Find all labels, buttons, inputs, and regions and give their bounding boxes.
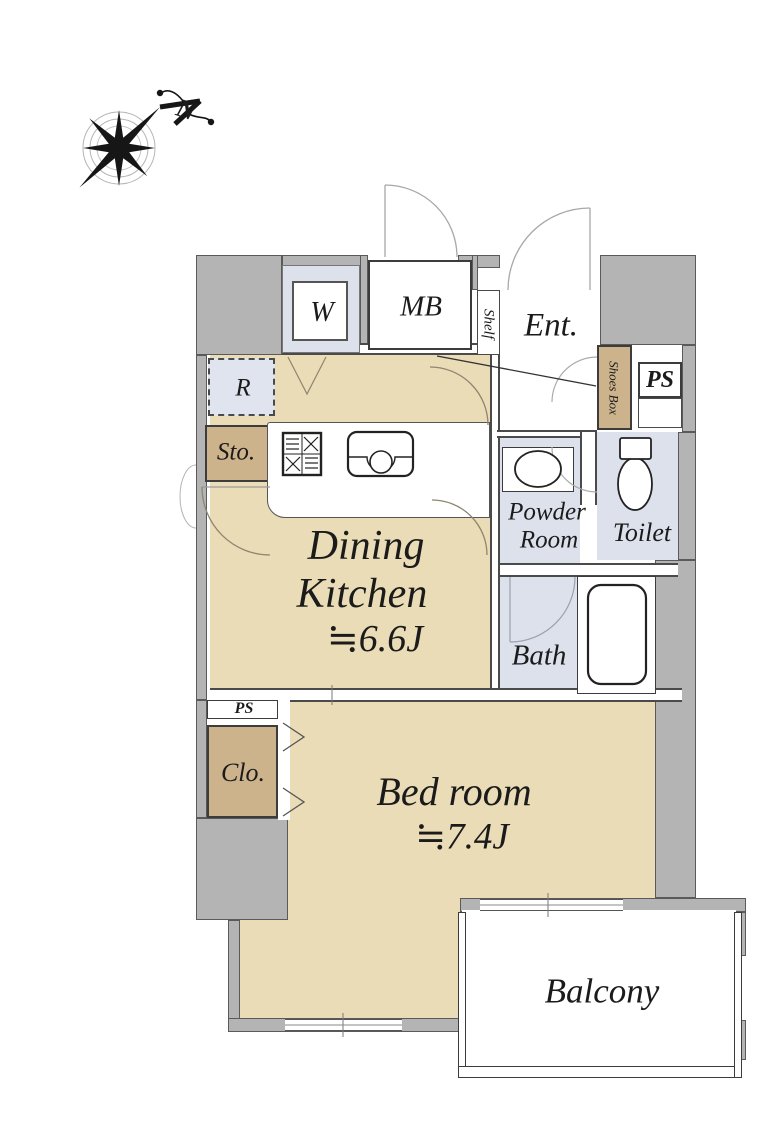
- label-refrigerator: R: [235, 376, 250, 401]
- wall-dk-hall: [490, 355, 500, 700]
- wall-right-toilet: [678, 432, 696, 560]
- label-balcony: Balcony: [545, 974, 660, 1009]
- label-bedroom-size: ≒7.4J: [415, 819, 509, 856]
- entrance-door-arc: [508, 208, 590, 290]
- label-pipe-space-lower: PS: [235, 701, 254, 717]
- wall-top-left-block: [196, 255, 282, 355]
- closet-door-strip: [278, 700, 290, 820]
- label-pipe-space-upper: PS: [646, 368, 674, 392]
- label-toilet: Toilet: [613, 520, 671, 546]
- wall-corner-block: [196, 818, 288, 920]
- label-meter-box: MB: [400, 293, 442, 322]
- wall-left-lower: [228, 920, 240, 1032]
- label-bedroom: Bed room: [376, 772, 531, 812]
- label-dk-line1: Dining: [308, 525, 425, 567]
- label-bath: Bath: [512, 642, 567, 671]
- label-north: N: [173, 95, 199, 126]
- wall-divider-mb-alcove: [472, 255, 478, 290]
- label-dk-line2: Kitchen: [297, 573, 428, 615]
- wall-divider-w-mb: [360, 255, 368, 355]
- kitchen-counter: [267, 422, 490, 518]
- balcony-rail-right: [734, 912, 742, 1078]
- exterior-vent-arc: [180, 465, 196, 528]
- label-storage: Sto.: [217, 440, 255, 465]
- label-powder-line1: Powder: [508, 500, 586, 525]
- meter-box-door-arc: [385, 185, 457, 257]
- wall-right-bath-bedroom: [655, 560, 696, 898]
- compass-star: [79, 107, 160, 188]
- window-bedroom-south: [285, 1019, 402, 1031]
- window-balcony: [480, 899, 623, 911]
- floor-plan: W MB Shelf Ent. Shoes Box PS R Sto. Dini…: [0, 0, 778, 1130]
- wall-top-right-block: [600, 255, 696, 345]
- label-closet: Clo.: [221, 760, 265, 786]
- pipe-space-upper-void: [638, 398, 682, 428]
- wall-powder-toilet: [580, 432, 597, 505]
- bath-floor: [500, 577, 577, 692]
- bath-tub-area: [577, 576, 656, 694]
- balcony-rail-bottom: [458, 1066, 742, 1078]
- label-shoes-box: Shoes Box: [608, 361, 621, 415]
- wall-powder-bath: [500, 563, 678, 577]
- label-dk-size: ≒6.6J: [327, 620, 423, 658]
- powder-sink-counter: [502, 447, 574, 492]
- wall-left-closet: [196, 700, 207, 818]
- label-washer: W: [310, 299, 333, 327]
- wall-right-upper: [682, 345, 696, 432]
- label-entrance: Ent.: [524, 310, 578, 343]
- wall-left-dk: [196, 355, 207, 700]
- label-powder-line2: Room: [520, 528, 578, 553]
- label-shelf: Shelf: [481, 309, 496, 339]
- balcony-rail-left: [458, 912, 466, 1078]
